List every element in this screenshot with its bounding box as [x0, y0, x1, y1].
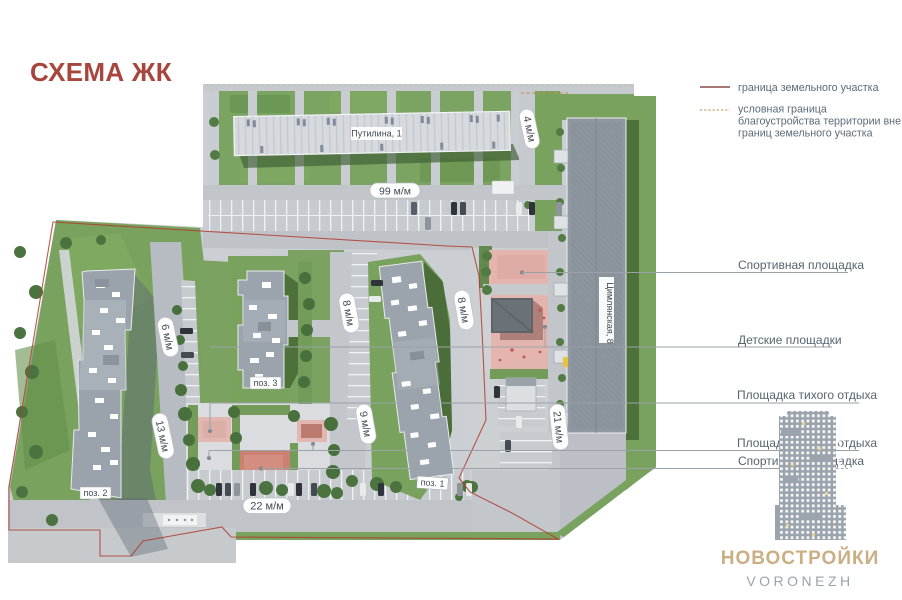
svg-text:благоустройства территории вне: благоустройства территории вне	[738, 116, 901, 128]
svg-text:Путилина, 1: Путилина, 1	[351, 129, 401, 139]
svg-text:Цимлянская, 8: Цимлянская, 8	[605, 282, 615, 344]
svg-text:Площадка тихого отдыха: Площадка тихого отдыха	[737, 388, 877, 402]
svg-text:НОВОСТРОЙКИ: НОВОСТРОЙКИ	[721, 547, 880, 569]
svg-text:границ земельного участка: границ земельного участка	[738, 128, 873, 140]
svg-text:граница земельного участка: граница земельного участка	[738, 82, 879, 94]
svg-text:поз. 3: поз. 3	[254, 378, 278, 388]
svg-text:поз. 2: поз. 2	[84, 488, 108, 498]
svg-text:Детские площадки: Детские площадки	[738, 333, 842, 347]
svg-text:99 м/м: 99 м/м	[379, 186, 411, 198]
svg-text:VORONEZH: VORONEZH	[746, 573, 853, 589]
svg-text:Спортивная площадка: Спортивная площадка	[738, 258, 864, 272]
svg-text:условная граница: условная граница	[738, 104, 827, 116]
svg-text:СХЕМА ЖК: СХЕМА ЖК	[30, 57, 172, 87]
svg-text:поз. 1: поз. 1	[420, 477, 445, 489]
svg-text:22 м/м: 22 м/м	[250, 501, 283, 513]
